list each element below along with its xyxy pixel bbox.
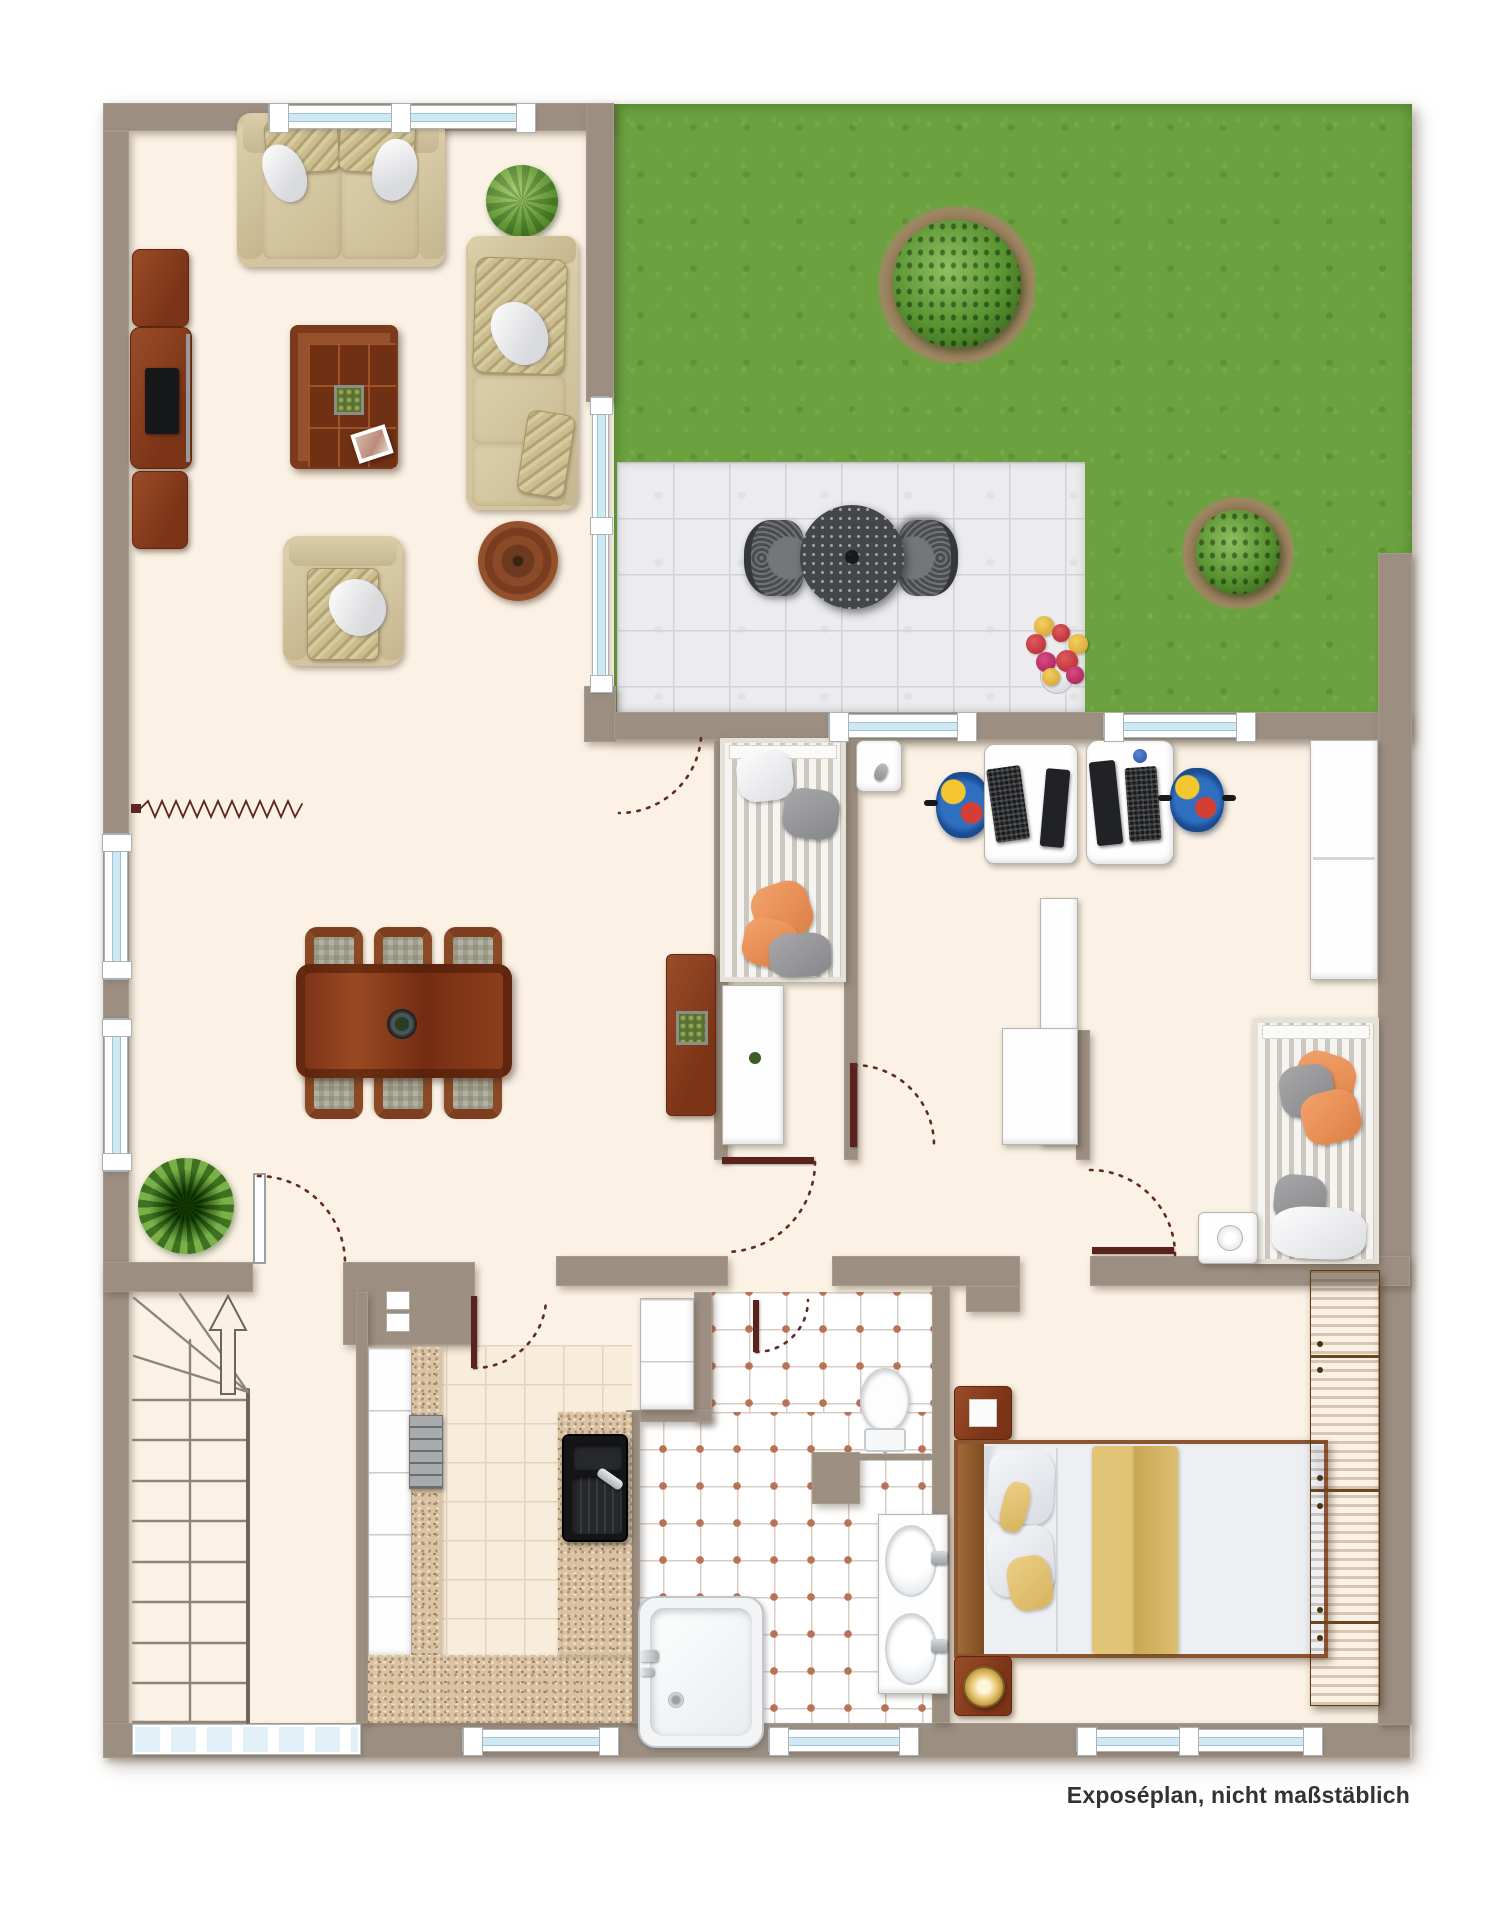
sink-faucet [931,1639,947,1653]
lamp-gold [963,1666,1005,1708]
glazing [1079,1737,1321,1746]
wall-living-garden [586,103,614,402]
wardrobe-handle [1317,1341,1323,1347]
wardrobe-divider [1311,1621,1379,1624]
sink-faucet [931,1551,947,1565]
entry-glass-band [133,1725,360,1754]
glazing [831,722,975,731]
window-mullion [463,1727,483,1756]
pillow-gray [768,931,832,978]
wardrobe-divider [1311,1355,1379,1358]
wardrobe-handle [1317,1475,1323,1481]
wardrobe-handle [1317,1367,1323,1373]
window-mullion [1236,712,1256,742]
window-mullion [1077,1727,1097,1756]
keyboard [986,765,1030,843]
window-mullion [1104,712,1124,742]
window-rightroom [1103,714,1255,738]
wall-patio-stub [584,686,616,742]
vanity-double-sink [878,1514,948,1694]
plan-caption: Exposéplan, nicht maßstäblich [900,1782,1410,1809]
window-office [828,714,976,738]
keyboard [1124,766,1161,842]
sink-basin-small [572,1444,622,1470]
shaft-box [386,1291,410,1310]
rightroom-chair [1170,768,1224,832]
dining-chair [305,1071,363,1119]
kitchen-nook-cabinets [640,1298,694,1410]
yucca-plant [138,1158,234,1254]
window-bathroom [768,1729,918,1752]
toilet-tank [864,1428,906,1452]
wall-corridor-thick [966,1286,1020,1312]
window-mullion [516,103,536,133]
wall-office-partition [1076,1030,1090,1160]
window-left-2 [104,1018,128,1172]
sofa-chaise [466,236,578,510]
rightroom-desk [1086,740,1174,865]
flower [1052,624,1070,642]
office-side-table [856,740,902,792]
shelf-line [1313,857,1375,860]
monitor [1040,768,1071,848]
dining-table [296,964,512,1078]
toilet [858,1368,912,1456]
armchair [283,536,403,666]
bush-large [893,220,1021,348]
nightstand-tray [969,1399,997,1427]
wall-garden-bottom [614,712,1410,740]
flower [1066,666,1084,684]
kid-bed [720,738,846,982]
glazing [112,836,121,979]
window-mullion [599,1727,619,1756]
tub-faucet [640,1650,658,1662]
window-left-1 [104,833,128,980]
sink-oval [885,1525,937,1597]
patio-chair [898,520,958,596]
center-bowl [387,1009,417,1039]
bed-headboard [1262,1025,1370,1039]
plant-living [486,165,558,237]
duvet-seam [1056,1448,1058,1652]
door-leaf-rightroom [1092,1247,1174,1254]
computer-mouse [872,761,890,782]
glazing [1106,722,1254,731]
kid-wardrobe [722,985,784,1145]
bed-runner [1092,1446,1178,1654]
coffee-table [290,325,398,469]
kitchen-sink [562,1434,628,1542]
wall-right [1378,553,1412,1725]
window-mullion [829,712,849,742]
flower-bouquet [1026,616,1088,690]
window-mullion [590,397,613,415]
backrest [289,536,397,566]
stove [409,1415,443,1489]
window-mullion [102,1153,132,1171]
kitchen-counter-bottom [368,1655,632,1723]
bedroom-wardrobe [1310,1270,1380,1706]
bathtub [638,1596,764,1748]
door-leaf-kitchen [471,1296,477,1368]
door-leaf-office [850,1063,857,1147]
tv-sideboard-bottom [132,471,188,549]
door-leaf-kidroom [722,1157,814,1164]
window-mullion [957,712,977,742]
office-chair [936,772,990,838]
tub-inner [650,1608,752,1736]
door-leaf-bath [753,1300,759,1352]
wardrobe-handle [1317,1607,1323,1613]
shaft-box [386,1313,410,1332]
wardrobe-divider [1311,1489,1379,1492]
window-mullion [899,1727,919,1756]
toilet-bowl [860,1368,910,1432]
window-mullion [269,103,289,133]
window-mullion [1179,1727,1199,1756]
bedroom-nightstand-a [954,1386,1012,1440]
window-mullion [769,1727,789,1756]
wall-corridor-south-a [556,1256,728,1286]
flower [1042,668,1060,686]
office-desk [984,744,1078,864]
wall-bath-stub [694,1292,712,1422]
knob [749,1052,761,1064]
rightroom-bed [1253,1018,1379,1264]
wall-corridor-south-b [832,1256,1020,1286]
sofa-two-seat [237,113,445,267]
tub-drain [668,1692,684,1708]
wardrobe-handle [1317,1503,1323,1509]
computer-mouse-blue [1133,749,1147,763]
tv-sideboard-top [132,249,189,327]
lamp-white [1217,1225,1243,1251]
rightroom-wardrobe [1310,740,1378,980]
tv-sideboard-mid [130,327,192,469]
wall-kitchen-left [356,1292,368,1723]
window-mullion [590,675,613,693]
glazing [112,1021,121,1171]
patio-table [800,505,904,609]
window-mullion [1303,1727,1323,1756]
office-cabinet-low [1002,1028,1078,1145]
door-leaf-entry [253,1173,266,1264]
glazing [597,399,606,691]
window-kitchen [462,1729,618,1752]
kitchen-counter-left [412,1347,442,1657]
glazing [465,1737,617,1746]
window-mullion [102,1019,132,1037]
wardrobe-handle [1317,1635,1323,1641]
sink-oval [885,1613,937,1685]
window-living-top [268,105,535,129]
window-mullion [590,517,613,535]
soundbar [186,334,190,462]
wall-dining-south [103,1262,253,1292]
tub-faucet [640,1668,654,1676]
window-bedroom [1076,1729,1322,1752]
pillow-gray [780,786,842,842]
succulent-box [334,385,364,415]
sideboard [666,954,716,1116]
kitchen-cabinets-left [368,1347,412,1657]
wall-bath-partition [812,1452,860,1504]
patio-chair [744,520,804,596]
glazing [771,1737,917,1746]
dining-chair [444,1071,502,1119]
flower [1026,634,1046,654]
flower [1034,616,1054,636]
window-mullion [102,834,132,852]
wall-bath-connector [640,1410,712,1422]
bed-headboard [958,1444,984,1654]
bush-small [1196,510,1280,594]
tv [145,368,179,434]
round-side-table [478,521,558,601]
patio-glass-door [592,396,609,692]
window-mullion [391,103,411,133]
rightroom-nightstand [1198,1212,1258,1264]
window-mullion [102,961,132,979]
double-bed [954,1440,1328,1658]
floor-plan: Exposéplan, nicht maßstäblich illustrati… [0,0,1509,1919]
pillow-white [1271,1205,1367,1260]
bedroom-nightstand-b [954,1656,1012,1716]
sideboard-plant [676,1011,708,1045]
monitor [1089,760,1124,846]
dining-chair [374,1071,432,1119]
